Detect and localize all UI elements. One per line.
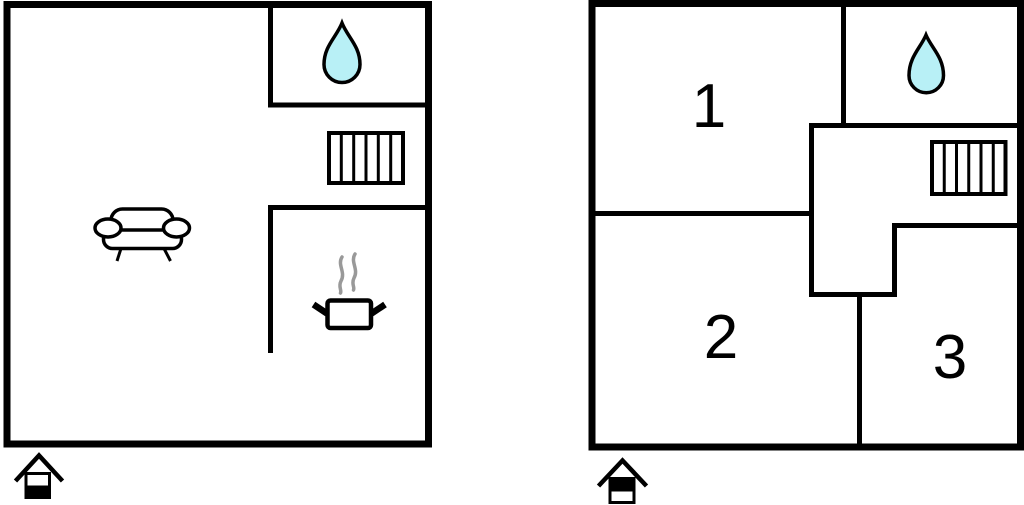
pot-body [328,301,372,329]
floor-plan-left [7,2,429,499]
floor-plans-drawing: 1 2 3 [0,0,1024,505]
room-label-3: 3 [933,323,967,392]
house-level-indicator-icon [599,461,647,503]
radiator-icon [329,133,403,183]
room-label-2: 2 [704,303,738,372]
sofa-armrest-left [95,219,121,237]
floor-plan-canvas: 1 2 3 [0,0,1024,505]
house-level-indicator-icon [16,456,63,499]
radiator-icon [932,142,1006,194]
outer-wall [7,5,429,445]
house-lower-level-filled [25,486,52,499]
sofa-armrest-right [164,219,190,237]
house-upper-level-filled [609,479,635,492]
room-label-1: 1 [692,72,726,141]
floor-plan-right: 1 2 3 [592,2,1021,503]
